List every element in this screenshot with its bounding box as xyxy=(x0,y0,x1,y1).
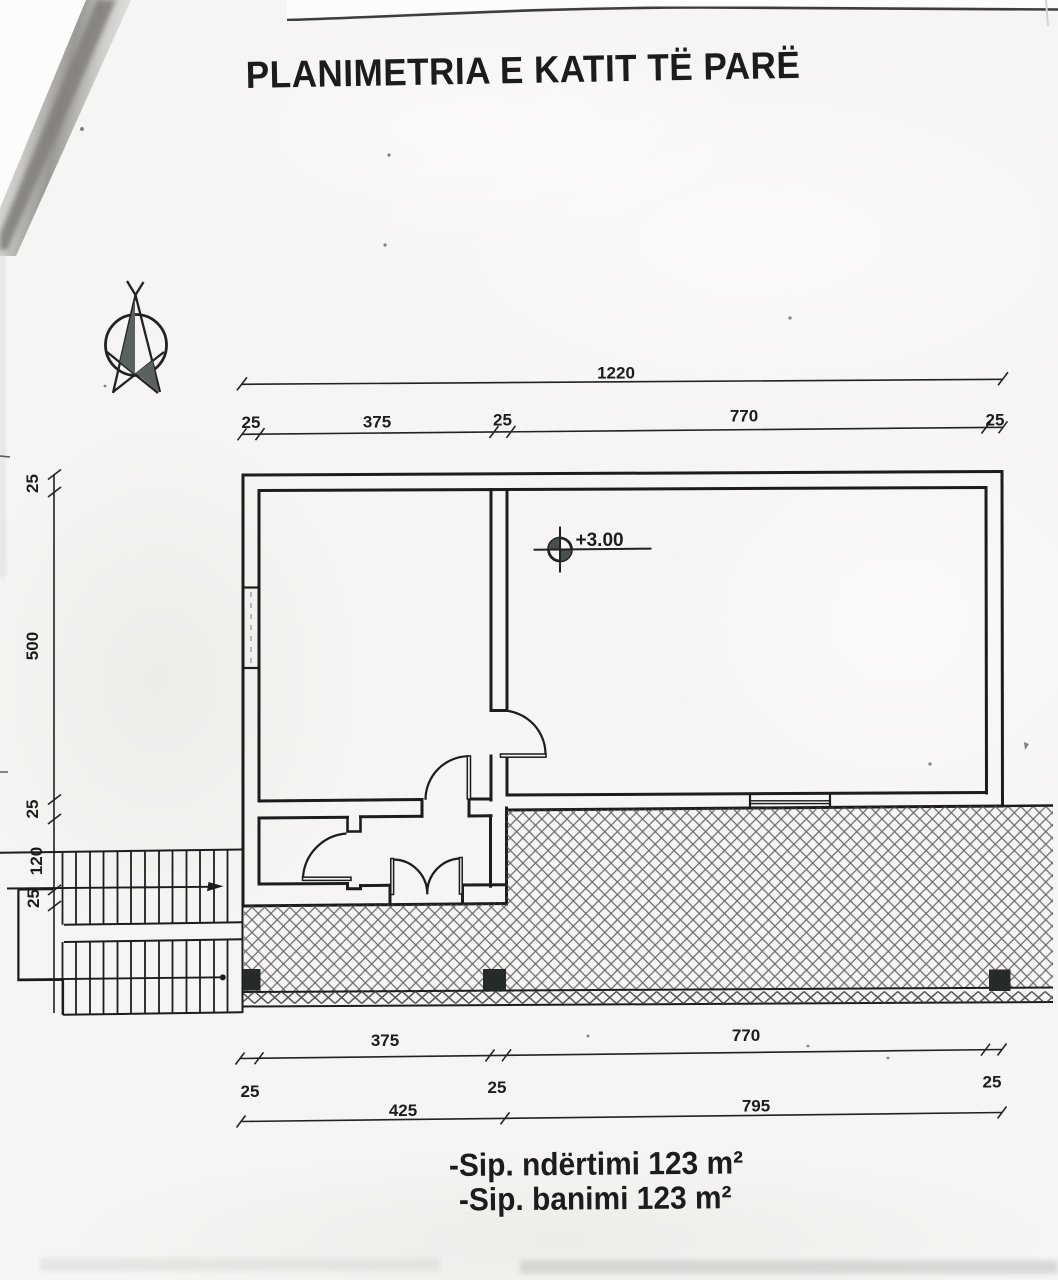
svg-text:375: 375 xyxy=(363,413,391,432)
svg-text:375: 375 xyxy=(371,1031,399,1050)
svg-text:-Sip. banimi 123 m²: -Sip. banimi 123 m² xyxy=(459,1179,732,1218)
svg-text:25: 25 xyxy=(493,411,512,430)
svg-text:770: 770 xyxy=(732,1026,760,1045)
svg-text:425: 425 xyxy=(389,1101,417,1120)
svg-text:25: 25 xyxy=(23,474,42,493)
svg-text:25: 25 xyxy=(986,411,1005,430)
svg-text:25: 25 xyxy=(241,1082,260,1101)
svg-text:1220: 1220 xyxy=(597,364,635,383)
svg-text:25: 25 xyxy=(242,413,261,432)
svg-text:25: 25 xyxy=(983,1073,1002,1092)
svg-text:+3.00: +3.00 xyxy=(576,530,624,551)
svg-text:-Sip. ndërtimi 123 m²: -Sip. ndërtimi 123 m² xyxy=(449,1145,744,1184)
svg-text:25: 25 xyxy=(488,1078,507,1097)
svg-text:500: 500 xyxy=(23,632,42,660)
svg-text:770: 770 xyxy=(730,407,758,426)
svg-text:795: 795 xyxy=(742,1097,770,1116)
svg-text:25: 25 xyxy=(24,889,43,908)
svg-text:25: 25 xyxy=(23,800,42,819)
svg-text:120: 120 xyxy=(27,847,46,875)
